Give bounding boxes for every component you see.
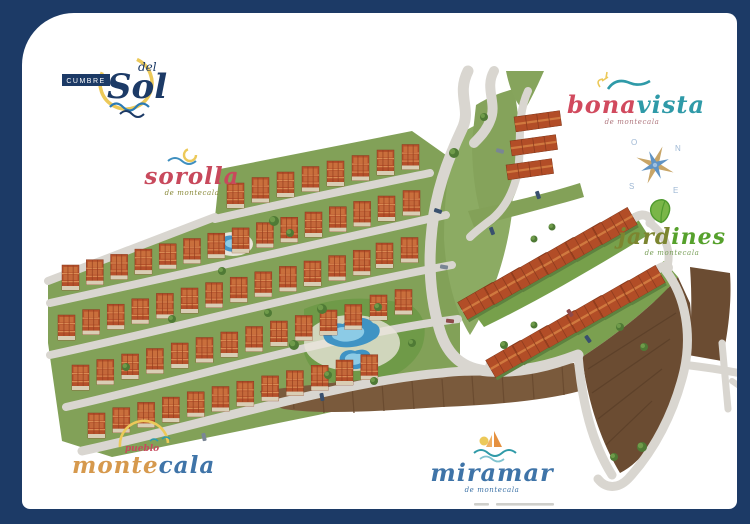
- jardines-name-part1: jard: [618, 224, 671, 250]
- waves-icon: [120, 111, 144, 117]
- miramar-boat-icon: [474, 431, 516, 462]
- label-jardines: jardines de montecala: [617, 226, 727, 257]
- siteplan-map: O N E S CUMBRE del Sol: [22, 13, 737, 509]
- label-sorolla: sorolla de montecala: [132, 165, 252, 197]
- bonavista-tagline: de montecala: [567, 119, 697, 126]
- bonavista-blocks: [506, 111, 562, 180]
- brand-logo: CUMBRE del Sol: [62, 48, 167, 117]
- compass-west: O: [631, 138, 637, 147]
- label-bonavista: bonavista de montecala: [567, 93, 697, 126]
- logo-name-text: Sol: [107, 67, 167, 107]
- map-card: O N E S CUMBRE del Sol: [22, 13, 737, 509]
- compass-south: S: [629, 182, 634, 191]
- compass-north: N: [675, 144, 681, 153]
- jardines-tagline: de montecala: [617, 250, 727, 257]
- label-miramar: miramar de montecala: [427, 461, 557, 494]
- label-montecala: pueblo montecala: [72, 445, 212, 477]
- sorolla-name: sorolla: [144, 163, 239, 190]
- montecala-name-part1: monte: [72, 452, 159, 479]
- bonavista-name-part2: vista: [637, 90, 705, 119]
- sorolla-tagline: de montecala: [132, 190, 252, 197]
- jardines-name-part2: ines: [671, 224, 726, 250]
- compass-east: E: [673, 186, 678, 195]
- miramar-tagline: de montecala: [427, 487, 557, 494]
- bonavista-name-part1: bona: [567, 90, 637, 119]
- logo-badge-text: CUMBRE: [66, 78, 105, 85]
- bonavista-icon: [598, 72, 650, 89]
- miramar-name: miramar: [430, 458, 553, 487]
- sorolla-icon: [168, 149, 196, 164]
- montecala-name-part2: cala: [159, 452, 216, 479]
- window-frame: O N E S CUMBRE del Sol: [0, 0, 750, 524]
- compass-rose: O N E S: [627, 137, 682, 195]
- legend-lines: [474, 503, 554, 509]
